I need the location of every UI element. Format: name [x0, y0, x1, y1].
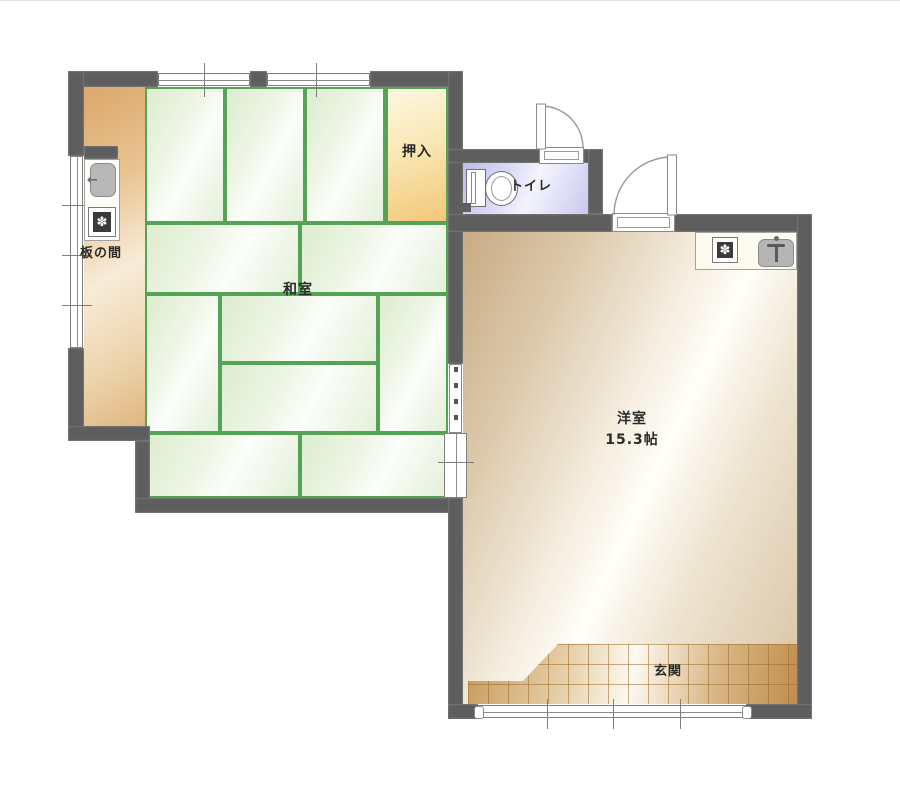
- wall: [797, 214, 812, 719]
- tatami-mat: [147, 89, 223, 221]
- dimension-tick: [680, 699, 681, 729]
- room-label-youshitsu: 洋室: [582, 411, 682, 428]
- room-label-washitsu: 和室: [268, 282, 328, 299]
- tatami-mat: [380, 296, 446, 431]
- toilet-paper-holder-icon: [462, 203, 471, 212]
- dimension-tick: [62, 305, 92, 306]
- tatami-mat: [302, 435, 446, 496]
- wall: [135, 498, 463, 513]
- window-cap: [474, 706, 484, 719]
- sliding-window: [478, 705, 746, 718]
- wall: [448, 214, 612, 232]
- wall: [674, 214, 812, 232]
- entry-door-frame: [612, 213, 675, 232]
- dimension-tick: [547, 699, 548, 729]
- window: [267, 73, 370, 86]
- tatami-mat: [147, 296, 218, 431]
- room-label-genkan: 玄関: [638, 664, 698, 680]
- room-label-itanoma: 板の間: [80, 246, 138, 262]
- burner-icon: ✽: [93, 212, 111, 232]
- wall: [68, 426, 150, 441]
- gas-stove-icon: ✽: [712, 237, 738, 263]
- tatami-mat: [307, 89, 383, 221]
- tatami-mat: [222, 296, 376, 361]
- shoji-opening: [449, 364, 462, 433]
- room-label-toilet: トイレ: [505, 179, 557, 195]
- water-heater-icon: [758, 239, 794, 267]
- wall: [448, 498, 463, 719]
- toilet-tank-icon: [466, 169, 486, 207]
- kitchen-sink-icon: ←: [90, 163, 116, 197]
- tatami-mat: [227, 89, 303, 221]
- wall: [84, 146, 118, 159]
- window: [444, 433, 467, 498]
- wall: [448, 149, 540, 163]
- dimension-tick: [613, 699, 614, 729]
- kitchen-stove-icon: ✽: [88, 207, 116, 237]
- burner-icon: ✽: [717, 242, 733, 258]
- wall: [746, 704, 812, 719]
- wall: [68, 71, 84, 156]
- room-size-youshitsu: 15.3帖: [582, 432, 682, 449]
- tatami-mat: [147, 435, 298, 496]
- dimension-tick: [316, 63, 317, 97]
- faucet-arrow-icon: ←: [87, 173, 98, 188]
- window-cap: [742, 706, 752, 719]
- wall: [588, 149, 603, 214]
- floor-plan: ← ✽ ✽ 和室 押入 板の間 トイレ 洋室 15.3帖 玄関: [0, 0, 900, 797]
- tatami-mat: [222, 365, 376, 431]
- western-room-floor: [463, 232, 797, 704]
- room-label-oshiire: 押入: [392, 144, 442, 161]
- toilet-door-frame: [539, 147, 584, 164]
- dimension-tick: [438, 462, 474, 463]
- wall: [250, 71, 267, 87]
- dimension-tick: [204, 63, 205, 97]
